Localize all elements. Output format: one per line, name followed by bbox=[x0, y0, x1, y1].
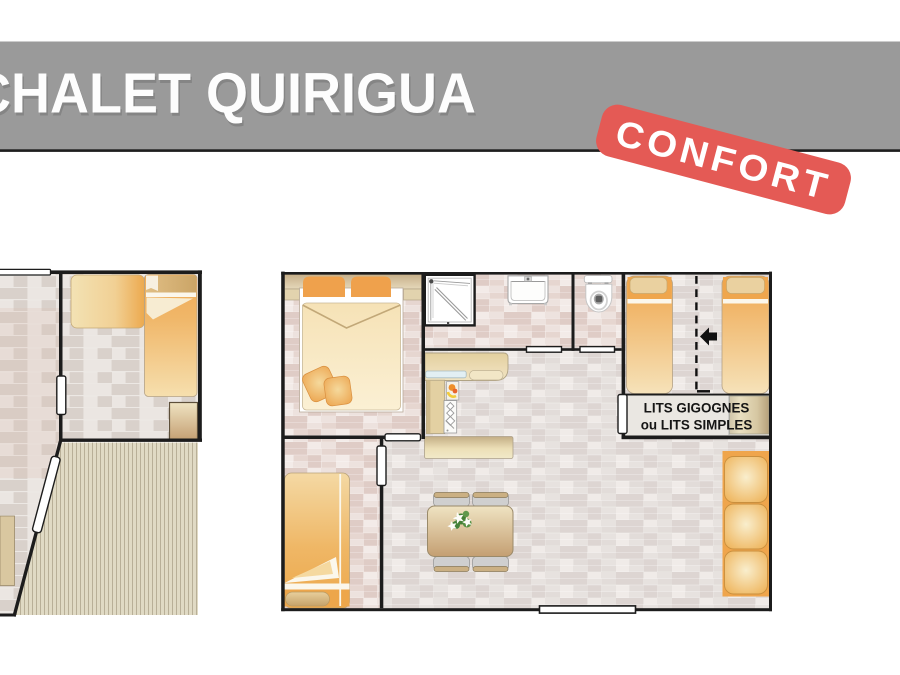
svg-text:ou LITS SIMPLES: ou LITS SIMPLES bbox=[641, 417, 753, 432]
svg-text:CHALET QUIRIGUA: CHALET QUIRIGUA bbox=[0, 61, 476, 124]
svg-text:LITS GIGOGNES: LITS GIGOGNES bbox=[644, 400, 750, 415]
